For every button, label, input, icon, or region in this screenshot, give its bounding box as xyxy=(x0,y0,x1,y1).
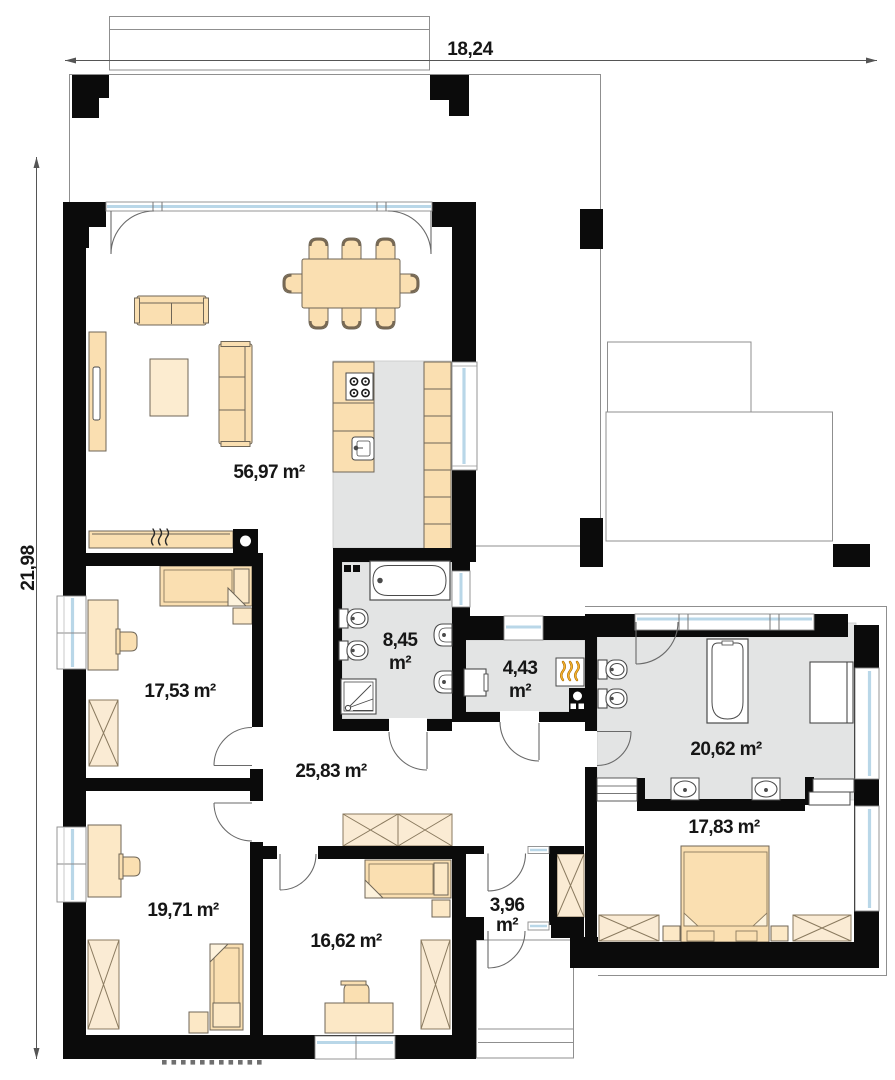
svg-text:25,83 m²: 25,83 m² xyxy=(295,761,367,782)
svg-text:19,71 m²: 19,71 m² xyxy=(147,900,219,921)
svg-text:17,53 m²: 17,53 m² xyxy=(144,681,216,702)
svg-text:m²: m² xyxy=(509,681,531,702)
svg-text:17,83 m²: 17,83 m² xyxy=(688,817,760,838)
svg-text:m²: m² xyxy=(389,653,411,674)
svg-text:21,98: 21,98 xyxy=(18,545,39,591)
svg-text:3,96: 3,96 xyxy=(490,895,525,916)
svg-text:16,62 m²: 16,62 m² xyxy=(310,931,382,952)
svg-text:m²: m² xyxy=(496,915,518,936)
svg-text:8,45: 8,45 xyxy=(383,630,419,651)
svg-text:4,43: 4,43 xyxy=(503,658,538,679)
svg-text:56,97 m²: 56,97 m² xyxy=(233,462,305,483)
svg-text:18,24: 18,24 xyxy=(447,39,493,60)
svg-text:20,62 m²: 20,62 m² xyxy=(690,739,762,760)
